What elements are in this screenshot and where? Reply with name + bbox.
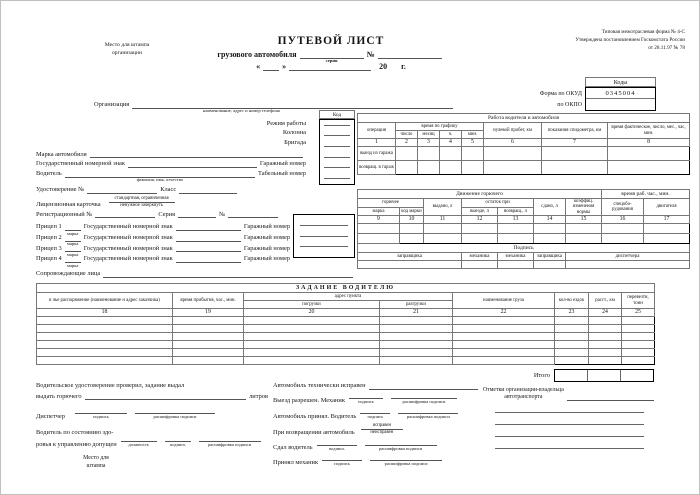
col-number: 15 (566, 216, 602, 224)
code-blank-line (324, 135, 350, 136)
signature-decode-blank: расшифровка подписи (370, 455, 442, 467)
data-cell (418, 161, 440, 175)
form-note-line: Утверждена постановлением Госкомстата Ро… (575, 37, 685, 45)
data-cell (462, 234, 498, 244)
health-text-line2: ровья к управлению допущен (36, 441, 117, 449)
signature-col: механика (498, 253, 534, 261)
signature-decode-blank: расшифровка подписи (365, 440, 437, 452)
data-cell (37, 341, 173, 349)
signature-blank: подпись (317, 440, 357, 452)
owner-marks-text: Отметки организации-владельца автотрансп… (483, 387, 564, 401)
code-blank-line (324, 167, 350, 168)
garage-number-label: Гаражный номер (260, 160, 306, 168)
col-header: месяц (418, 131, 440, 139)
data-cell (173, 349, 244, 357)
quote-close: » (282, 62, 286, 71)
license-line: Удостоверение № Класс (36, 186, 356, 194)
code-blank-line (324, 125, 350, 126)
tech-ok-line: Автомобиль технически исправен (273, 382, 481, 390)
data-cell (400, 234, 424, 244)
number-blank (378, 51, 442, 59)
on-return-label: При возвращении автомобиль (273, 429, 355, 437)
organization-line: Организация наименование, адрес и номер … (36, 101, 456, 109)
driver-line: Водитель фамилия, имя, отчество Табельны… (36, 170, 356, 178)
data-cell (173, 357, 244, 365)
col-group-fuel: горючее (358, 199, 424, 208)
data-cell (589, 349, 622, 357)
fuel-table-title: Движение горючего (358, 190, 602, 199)
col-group-schedule: время по графику (396, 123, 484, 131)
data-cell (453, 349, 555, 357)
data-cell (555, 333, 589, 341)
data-cell (602, 224, 644, 234)
vehicle-make-line: Марка автомобиля (36, 151, 356, 159)
footer-left-block: Водительское удостоверение проверил, зад… (36, 382, 268, 471)
driver-blank: фамилия, имя, отчество (65, 171, 255, 178)
data-cell (555, 349, 589, 357)
departure-allowed-label: Выезд разрешен. Механик (273, 397, 345, 405)
data-cell (37, 333, 173, 341)
license-no-label: Удостоверение № (36, 186, 84, 194)
title-block: ПУТЕВОЙ ЛИСТ грузового автомобиля серия … (176, 35, 486, 71)
col-header-speedometer: показания спидометра, км (542, 123, 608, 139)
col-header-issued: выдано, л (424, 199, 462, 216)
year-suffix: г. (401, 62, 406, 71)
col-number: 13 (498, 216, 534, 224)
personnel-number-label: Табельный номер (258, 170, 306, 178)
state-plate-blank (128, 161, 257, 168)
col-header: число (396, 131, 418, 139)
data-cell (602, 234, 644, 244)
code-column-box: Код (319, 110, 355, 185)
on-return-line: При возвращении автомобиль исправен неис… (273, 423, 481, 436)
data-cell (424, 224, 462, 234)
day-blank (263, 63, 279, 71)
data-cell (173, 341, 244, 349)
col-header-coefficient: коэффиц. изменения нормы (566, 199, 602, 216)
escorts-line: Сопровождающие лица (36, 270, 356, 278)
code-blank-line (324, 178, 350, 179)
trailer-make-caption: марка (59, 264, 87, 269)
total-cell (555, 370, 587, 381)
serviceable-choice: исправен неисправен (361, 423, 403, 436)
work-mode-line: Режим работы (36, 120, 356, 128)
data-cell (484, 147, 542, 161)
col-number: 25 (622, 309, 655, 317)
class-blank (179, 187, 237, 194)
col-number: 24 (589, 309, 622, 317)
footer-right-block: Отметки организации-владельца автотрансп… (483, 387, 654, 449)
data-cell (484, 161, 542, 175)
vehicle-info-block: Организация наименование, адрес и номер … (36, 101, 356, 278)
data-cell (453, 325, 555, 333)
data-cell (380, 333, 453, 341)
total-label: Итого (534, 372, 550, 379)
data-cell (396, 147, 418, 161)
col-header: разгрузки (380, 301, 453, 309)
dispatcher-line: Диспетчер подпись расшифровка подписи (36, 408, 268, 420)
signature-caption: подпись (322, 461, 362, 467)
data-cell (37, 325, 173, 333)
notes-line (495, 425, 644, 437)
code-column-body (319, 119, 355, 185)
data-cell (644, 234, 690, 244)
signature-decode-caption: расшифровка подписи (398, 414, 458, 420)
signature-blank: подпись (165, 436, 191, 448)
driver-task-table: ЗАДАНИЕ ВОДИТЕЛЮ в чье распоряжение (наи… (36, 283, 654, 365)
signature-col: механика (462, 253, 498, 261)
data-cell (380, 317, 453, 325)
accepted-by-mechanic-line: Принял механик подпись расшифровка подпи… (273, 455, 481, 467)
codes-values-box: 0345004 (585, 87, 656, 111)
signature-cell (498, 261, 534, 269)
data-cell (400, 224, 424, 234)
position-blank: должность (121, 436, 157, 448)
total-cell (587, 370, 620, 381)
tech-ok-blank (369, 383, 478, 390)
data-cell (534, 234, 566, 244)
health-line2: ровья к управлению допущен должность под… (36, 436, 268, 448)
data-cell (589, 341, 622, 349)
vehicle-make-blank (90, 151, 303, 158)
code-blank-line (324, 157, 350, 158)
data-cell (244, 325, 380, 333)
vehicle-make-label: Марка автомобиля (36, 151, 87, 159)
data-cell (589, 317, 622, 325)
data-cell (173, 325, 244, 333)
data-cell (498, 234, 534, 244)
data-cell (622, 341, 655, 349)
col-number: 16 (602, 216, 644, 224)
data-cell (644, 224, 690, 234)
signature-decode-blank: расшифровка подписи (135, 408, 215, 420)
footer-middle-block: Автомобиль технически исправен Выезд раз… (273, 382, 481, 467)
notes-line (495, 401, 644, 413)
data-cell (37, 357, 173, 365)
data-cell (608, 161, 690, 175)
data-cell (440, 161, 462, 175)
codes-table: Форма по ОКУД по ОКПО Коды 0345004 (456, 77, 656, 111)
unserviceable-option: неисправен (361, 430, 403, 436)
col-number: 10 (400, 216, 424, 224)
col-header: код марки (400, 207, 424, 216)
signature-caption: подпись (360, 414, 390, 420)
signature-caption: подпись (75, 414, 127, 420)
col-number: 19 (173, 309, 244, 317)
signature-decode-blank: расшифровка подписи (398, 408, 458, 420)
col-number: 5 (462, 139, 484, 147)
data-cell (555, 357, 589, 365)
col-header-trips: кол-во ездок (555, 293, 589, 309)
code-blank-line (300, 225, 348, 226)
work-mode-label: Режим работы (267, 120, 306, 128)
signature-cell (462, 261, 498, 269)
signature-cell (534, 261, 566, 269)
data-cell (424, 234, 462, 244)
license-card-label: Лицензионная карточка (36, 201, 101, 209)
signature-blank: подпись (349, 393, 383, 405)
codes-labels: Форма по ОКУД по ОКПО (540, 88, 585, 111)
data-cell (358, 234, 400, 244)
okud-value: 0345004 (586, 88, 655, 99)
series-label: Серия (158, 211, 175, 219)
column-line: Колонна (36, 129, 356, 137)
registration-no-blank (95, 211, 155, 218)
vehicle-accepted-line: Автомобиль принял. Водитель подпись расш… (273, 408, 481, 420)
form-approval-note: Типовая межотраслевая форма № 4-С Утверж… (575, 29, 685, 52)
trailer-garage-label: Гаражный номер (244, 223, 290, 231)
data-cell (37, 349, 173, 357)
data-cell (453, 317, 555, 325)
number-sign2: № (219, 211, 225, 219)
month-blank (289, 63, 371, 71)
class-label: Класс (160, 186, 176, 194)
data-cell (173, 317, 244, 325)
driver-caption: фамилия, имя, отчество (59, 178, 261, 183)
data-cell (555, 341, 589, 349)
tech-ok-label: Автомобиль технически исправен (273, 382, 366, 390)
data-cell (555, 317, 589, 325)
col-header-actual-time: время фактическое, число, мес., час, мин… (608, 123, 690, 139)
data-cell (622, 349, 655, 357)
okpo-label: по ОКПО (540, 99, 585, 110)
driver-label: Водитель (36, 170, 62, 178)
signature-col: заправщика (534, 253, 566, 261)
trailer-plate-blank (176, 235, 241, 242)
task-table-title: ЗАДАНИЕ ВОДИТЕЛЮ (37, 284, 655, 293)
fuel-movement-table: Движение горючего время раб. час., мин. … (357, 189, 689, 269)
departure-allowed-line: Выезд разрешен. Механик подпись расшифро… (273, 393, 481, 405)
row-label-return: возвращ. в гараж (358, 161, 396, 175)
data-cell (380, 325, 453, 333)
col-number: 21 (380, 309, 453, 317)
registration-number-blank (228, 211, 278, 218)
signature-decode-caption: расшифровка подписи (391, 399, 457, 405)
col-header-operation: операция (358, 123, 396, 139)
col-number: 12 (462, 216, 498, 224)
signature-decode-caption: расшифровка подписи (365, 446, 437, 452)
col-header-disposal: в чье распоряжение (наименование и адрес… (37, 293, 173, 309)
data-cell (462, 224, 498, 234)
col-header-special-equipment: спецобо-рудования (602, 199, 644, 216)
data-cell (462, 147, 484, 161)
driver-vehicle-work-table: Работа водителя и автомобиля операция вр… (357, 113, 689, 175)
license-card-option-top: стандартная, ограниченная (109, 196, 175, 203)
data-cell (244, 317, 380, 325)
issue-fuel-blank (85, 393, 246, 400)
position-caption: должность (121, 442, 157, 448)
trailer-garage-label: Гаражный номер (244, 245, 290, 253)
trailer-plate-label: Государственный номерной знак (84, 245, 173, 253)
col-group-work-time: время раб. час., мин. (602, 190, 690, 199)
total-cell (620, 370, 653, 381)
data-cell (498, 224, 534, 234)
col-number: 2 (396, 139, 418, 147)
organization-label: Организация (94, 101, 129, 109)
col-number: 11 (424, 216, 462, 224)
data-cell (380, 341, 453, 349)
signature-decode-caption: расшифровка подписи (135, 414, 215, 420)
stamp-line: штампа (36, 462, 156, 471)
license-card-option-note: ненужное зачеркнуть (109, 203, 175, 209)
data-cell (396, 161, 418, 175)
code-blank-line (300, 246, 348, 247)
data-cell (173, 333, 244, 341)
handed-by-driver-line: Сдал водитель подпись расшифровка подпис… (273, 440, 481, 452)
serviceable-option: исправен (361, 423, 403, 430)
stamp-line: Место для штампа (59, 41, 195, 49)
col-number: 6 (484, 139, 542, 147)
code-column-header: Код (319, 110, 355, 119)
footer-stamp-area: Место для штампа (36, 454, 156, 471)
codes-column: Коды 0345004 (585, 77, 656, 111)
data-cell (380, 349, 453, 357)
trailer-plate-label: Государственный номерной знак (84, 223, 173, 231)
signature-blank: подпись (360, 408, 390, 420)
signature-col: заправщика (358, 253, 462, 261)
subtitle-line: грузового автомобиля серия № (176, 50, 486, 59)
col-header-transport: перевезти, тонн (622, 293, 655, 309)
issue-fuel-label: выдать горючего (36, 393, 82, 401)
signature-cell (566, 261, 690, 269)
signature-cell (358, 261, 462, 269)
health-text-line1: Водитель по состоянию здо- (36, 429, 268, 437)
form-title: ПУТЕВОЙ ЛИСТ (176, 35, 486, 47)
series-blank2 (178, 211, 216, 218)
stamp-line: Место для (36, 454, 156, 463)
data-cell (555, 325, 589, 333)
col-header: мин. (462, 131, 484, 139)
col-number: 20 (244, 309, 380, 317)
col-group-remainder: остаток при (462, 199, 534, 208)
data-cell (453, 341, 555, 349)
col-header-handed-in: сдано, л (534, 199, 566, 216)
trailer-plate-blank (176, 256, 241, 263)
data-cell (622, 357, 655, 365)
series-blank: серия (300, 51, 364, 59)
total-cells-box (554, 369, 654, 382)
trailer-plate-label: Государственный номерной знак (84, 234, 173, 242)
form-note-line: Типовая межотраслевая форма № 4-С (575, 29, 685, 37)
col-group-address: адрес пункта (244, 293, 453, 301)
work-table-title: Работа водителя и автомобиля (358, 114, 690, 123)
escorts-label: Сопровождающие лица (36, 270, 100, 278)
data-cell (566, 224, 602, 234)
trailer-plate-blank (176, 245, 241, 252)
quote-open: « (256, 62, 260, 71)
accepted-by-mechanic-label: Принял механик (273, 459, 318, 467)
code-blank-line (324, 146, 350, 147)
trailer-make-blank: марка (65, 245, 81, 252)
col-header: ч. (440, 131, 462, 139)
data-cell (608, 147, 690, 161)
col-number: 4 (440, 139, 462, 147)
signature-caption: подпись (165, 442, 191, 448)
license-no-blank (87, 187, 157, 194)
col-number: 1 (358, 139, 396, 147)
brigade-label: Бригада (284, 139, 306, 147)
data-cell (622, 333, 655, 341)
signature-decode-caption: расшифровка подписи (199, 442, 261, 448)
signature-title: Подпись (358, 244, 690, 253)
col-number: 3 (418, 139, 440, 147)
col-header-cargo: наименование груза (453, 293, 555, 309)
data-cell (566, 234, 602, 244)
col-number: 8 (608, 139, 690, 147)
owner-marks-blank (567, 393, 654, 401)
state-plate-label: Государственный номерной знак (36, 160, 125, 168)
data-cell (244, 333, 380, 341)
data-cell (542, 161, 608, 175)
trailer-code-box (293, 214, 355, 258)
data-cell (589, 333, 622, 341)
handed-by-driver-label: Сдал водитель (273, 444, 313, 452)
data-cell (418, 147, 440, 161)
col-number: 14 (534, 216, 566, 224)
data-cell (589, 325, 622, 333)
license-card-line: Лицензионная карточка стандартная, огран… (36, 196, 356, 209)
owner-marks-label1: Отметки организации-владельца (483, 387, 564, 394)
data-cell (380, 357, 453, 365)
signature-caption: подпись (349, 399, 383, 405)
col-number: 7 (542, 139, 608, 147)
data-cell (244, 357, 380, 365)
col-number: 17 (644, 216, 690, 224)
data-cell (534, 224, 566, 234)
trailer-plate-label: Государственный номерной знак (84, 255, 173, 263)
notes-line (495, 437, 644, 449)
trailer-plate-blank (176, 224, 241, 231)
owner-marks-line: Отметки организации-владельца автотрансп… (483, 387, 654, 401)
signature-decode-caption: расшифровка подписи (370, 461, 442, 467)
signature-decode-blank: расшифровка подписи (391, 393, 457, 405)
data-cell (37, 317, 173, 325)
data-cell (440, 147, 462, 161)
code-blank-line (300, 236, 348, 237)
signature-caption: подпись (317, 446, 357, 452)
okpo-value (586, 99, 655, 110)
brigade-line: Бригада (36, 139, 356, 147)
col-header-engine: двигателя (644, 199, 690, 216)
registration-no-label: Регистрационный № (36, 211, 92, 219)
escorts-blank (103, 271, 353, 278)
date-line: « » 20 г. (176, 62, 486, 71)
trailer-garage-label: Гаражный номер (244, 234, 290, 242)
state-plate-line: Государственный номерной знакГаражный но… (36, 160, 356, 168)
row-label-departure: выезд из гаража (358, 147, 396, 161)
form-note-line: от 28.11.97 № 78 (575, 45, 685, 53)
liters-label: литров (249, 393, 268, 401)
column-label: Колонна (283, 129, 306, 137)
data-cell (622, 317, 655, 325)
col-header: марка (358, 207, 400, 216)
vehicle-accepted-label: Автомобиль принял. Водитель (273, 413, 356, 421)
dispatcher-label: Диспетчер (36, 413, 65, 421)
data-cell (542, 147, 608, 161)
col-number: 22 (453, 309, 555, 317)
signature-blank: подпись (322, 455, 362, 467)
task-total-row: Итого (481, 369, 654, 382)
waybill-form-page: Место для штампа организации ПУТЕВОЙ ЛИС… (0, 0, 700, 495)
signature-decode-blank: расшифровка подписи (199, 436, 261, 448)
trailer-make-blank: марка (65, 235, 81, 242)
signature-col: диспетчера (566, 253, 690, 261)
signature-blank: подпись (75, 408, 127, 420)
trailer-make-blank: марка (65, 224, 81, 231)
col-number: 9 (358, 216, 400, 224)
stamp-line: организации (59, 49, 195, 57)
col-header: возвращ., л (498, 207, 534, 216)
